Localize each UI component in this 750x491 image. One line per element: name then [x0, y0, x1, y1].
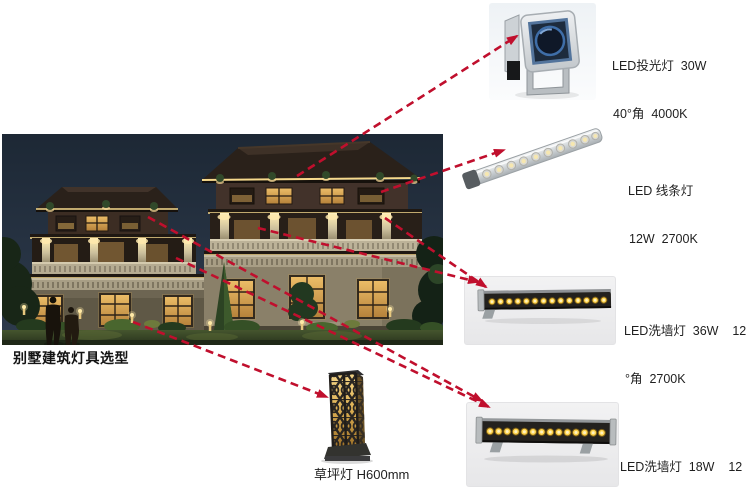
- floodlight-photo: [489, 3, 596, 100]
- wall-washer-18w-drawing: [467, 403, 618, 486]
- building-rendering-image: [2, 134, 443, 345]
- wall-washer-18w-label-line1: LED洗墙灯 18W 12: [620, 459, 742, 475]
- wall-washer-36w-label: LED洗墙灯 36W 12 °角 2700K: [624, 291, 746, 419]
- building-rendering-svg: [2, 134, 443, 345]
- floodlight-label: LED投光灯 30W 40°角 4000K: [612, 26, 706, 154]
- wall-washer-36w-label-line1: LED洗墙灯 36W 12: [624, 323, 746, 339]
- lawn-lamp-drawing: [316, 363, 378, 465]
- wall-washer-36w-label-line2: °角 2700K: [624, 371, 746, 387]
- lawn-lamp-photo: [316, 363, 378, 465]
- linear-light-drawing: [452, 124, 612, 204]
- page-canvas: 别墅建筑灯具选型 LED投光灯 30W 40°角 4000K: [0, 0, 750, 491]
- floodlight-label-line2: 40°角 4000K: [612, 106, 706, 122]
- wall-washer-18w-label: LED洗墙灯 18W 12 °角 2700K: [620, 427, 742, 491]
- linear-light-label: LED 线条灯 12W 2700K: [628, 151, 698, 279]
- floodlight-label-line1: LED投光灯 30W: [612, 58, 706, 74]
- floodlight-drawing: [489, 3, 596, 100]
- linear-light-photo: [452, 124, 612, 204]
- linear-light-label-line2: 12W 2700K: [628, 231, 698, 247]
- wall-washer-36w-drawing: [465, 277, 615, 344]
- wall-washer-36w-photo: [464, 276, 616, 345]
- wall-washer-18w-photo: [466, 402, 619, 487]
- page-title: 别墅建筑灯具选型: [13, 348, 129, 368]
- linear-light-label-line1: LED 线条灯: [628, 183, 698, 199]
- lawn-lamp-caption: 草坪灯 H600mm: [314, 464, 409, 483]
